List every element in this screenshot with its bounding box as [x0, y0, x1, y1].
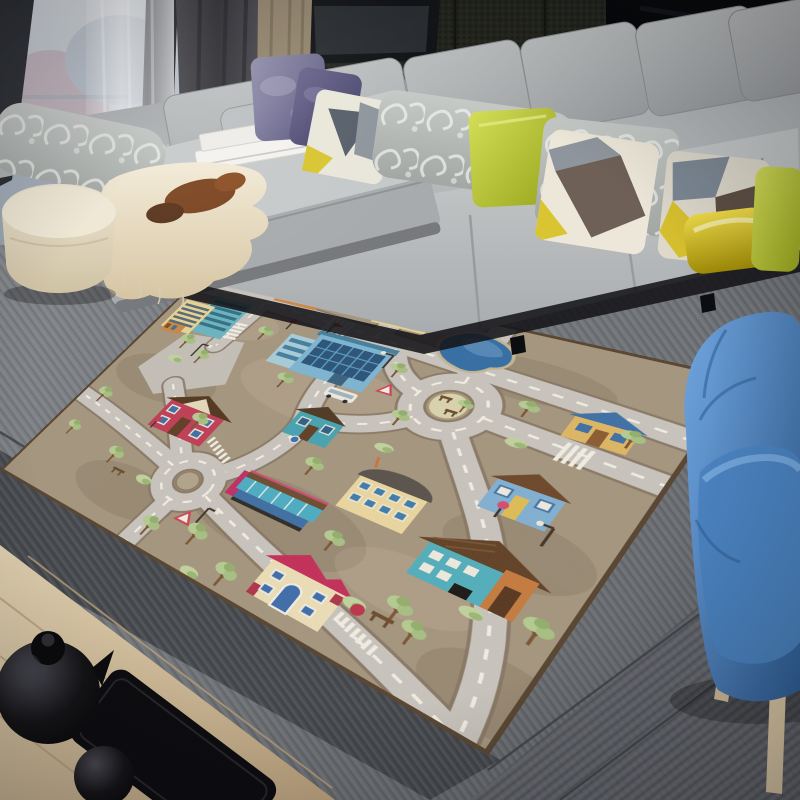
wall-tv — [606, 0, 800, 82]
living-room-scene — [0, 0, 800, 800]
window — [0, 0, 190, 250]
beige-curtain — [256, 0, 312, 202]
picture-frame — [303, 0, 440, 64]
drapes — [176, 0, 260, 226]
